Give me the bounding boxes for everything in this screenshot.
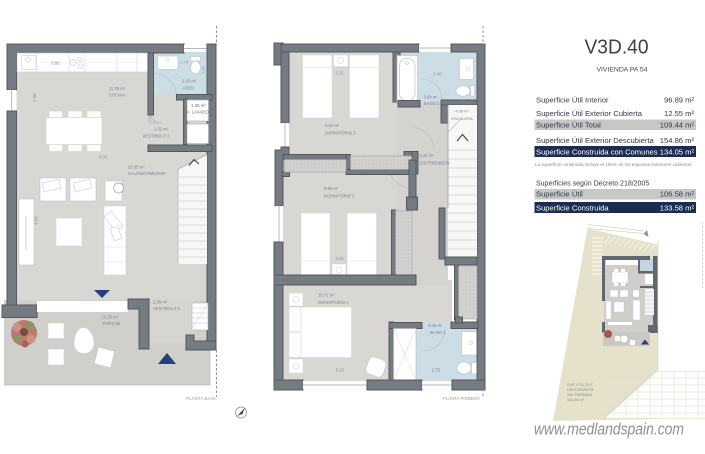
svg-text:DORMITORIO 2: DORMITORIO 2 [324, 194, 355, 199]
svg-text:Superficie Útil Total: Superficie Útil Total [536, 121, 601, 130]
svg-text:V3D.40: V3D.40 [585, 36, 649, 59]
svg-text:DESCUBIERTA: DESCUBIERTA [567, 388, 594, 392]
svg-text:COCINA: COCINA [109, 93, 125, 98]
svg-text:2.90: 2.90 [32, 93, 37, 102]
svg-text:A. LAVADO: A. LAVADO [186, 110, 209, 115]
svg-text:SIN TERRAZA: SIN TERRAZA [567, 393, 593, 397]
svg-text:BAÑO 1: BAÑO 1 [430, 330, 446, 335]
svg-text:ESCALERA: ESCALERA [451, 116, 473, 121]
svg-text:3.32 m²: 3.32 m² [420, 153, 435, 158]
svg-text:Superficie Útil Exterior Cubie: Superficie Útil Exterior Cubierta [536, 109, 643, 118]
svg-text:3.20: 3.20 [335, 256, 344, 261]
svg-text:11.39 m²: 11.39 m² [109, 86, 126, 91]
svg-text:VESTIBULO 2: VESTIBULO 2 [143, 134, 171, 139]
svg-text:1.25 m²: 1.25 m² [191, 103, 206, 108]
svg-text:3.64 m²: 3.64 m² [424, 95, 439, 100]
svg-text:12.55 m²: 12.55 m² [664, 109, 694, 118]
svg-text:3.10: 3.10 [336, 368, 345, 373]
svg-text:www.medlandspain.com: www.medlandspain.com [534, 420, 684, 439]
svg-text:1.32 m²: 1.32 m² [154, 127, 169, 132]
svg-text:4.06 m²: 4.06 m² [428, 323, 443, 328]
svg-text:Superficie Útil Exterior Descu: Superficie Útil Exterior Descubierta [536, 136, 655, 145]
svg-text:SALON/COMEDOR: SALON/COMEDOR [128, 171, 165, 176]
svg-text:PLANTA PRIMERA: PLANTA PRIMERA [443, 396, 481, 401]
svg-text:PLANTA BAJA: PLANTA BAJA [186, 396, 217, 401]
svg-text:BAÑO 2: BAÑO 2 [424, 101, 440, 106]
svg-text:3.95: 3.95 [51, 61, 60, 66]
svg-text:Superficie Construida con Comu: Superficie Construida con Comunes [536, 148, 658, 157]
svg-text:2.15 m²: 2.15 m² [182, 79, 197, 84]
svg-text:Superficies según Decreto 218/: Superficies según Decreto 218/2005 [536, 181, 649, 188]
svg-text:Superficie Útil: Superficie Útil [536, 190, 583, 199]
svg-text:PORCHE: PORCHE [103, 321, 121, 326]
svg-text:12.35 m²: 12.35 m² [102, 315, 119, 320]
svg-text:133.58 m²: 133.58 m² [660, 204, 695, 213]
svg-text:Superficie Construida: Superficie Construida [536, 204, 609, 213]
svg-text:VIVIENDA PA 54: VIVIENDA PA 54 [597, 67, 648, 74]
svg-text:1.75: 1.75 [181, 60, 190, 65]
svg-text:SUP. ÚTIL EXT.: SUP. ÚTIL EXT. [567, 382, 594, 387]
svg-text:DISTRIBUIDOR: DISTRIBUIDOR [420, 161, 450, 166]
svg-text:23.35 m²: 23.35 m² [128, 165, 145, 170]
svg-text:ASEO: ASEO [183, 86, 195, 91]
svg-text:96.89 m²: 96.89 m² [664, 96, 694, 105]
svg-text:Superficie Útil Interior: Superficie Útil Interior [536, 96, 609, 105]
svg-text:DORMITORIO 1: DORMITORIO 1 [318, 300, 349, 305]
svg-text:154.86 m²: 154.86 m² [567, 398, 585, 402]
svg-text:16.71 m²: 16.71 m² [318, 293, 335, 298]
svg-text:DORMITORIO 3: DORMITORIO 3 [325, 131, 356, 136]
svg-text:2.55: 2.55 [432, 368, 441, 373]
svg-text:154.86 m²: 154.86 m² [660, 136, 695, 145]
svg-text:4.00: 4.00 [99, 155, 108, 160]
svg-text:VESTIBULO 1: VESTIBULO 1 [153, 306, 181, 311]
svg-text:4.38 m²: 4.38 m² [455, 109, 469, 114]
svg-text:106.58 m²: 106.58 m² [660, 190, 695, 199]
svg-text:9.58 m²: 9.58 m² [324, 186, 339, 191]
svg-text:2.00: 2.00 [201, 65, 206, 74]
svg-text:2.40: 2.40 [433, 72, 442, 77]
svg-text:3.25: 3.25 [335, 71, 344, 76]
svg-text:9.52 m²: 9.52 m² [325, 123, 340, 128]
svg-text:134.05 m²: 134.05 m² [660, 148, 695, 157]
svg-text:109.44 m²: 109.44 m² [660, 121, 695, 130]
svg-text:La superficie construida inclu: La superficie construida incluye el 100%… [535, 162, 693, 167]
svg-text:2.36 m²: 2.36 m² [153, 300, 168, 305]
